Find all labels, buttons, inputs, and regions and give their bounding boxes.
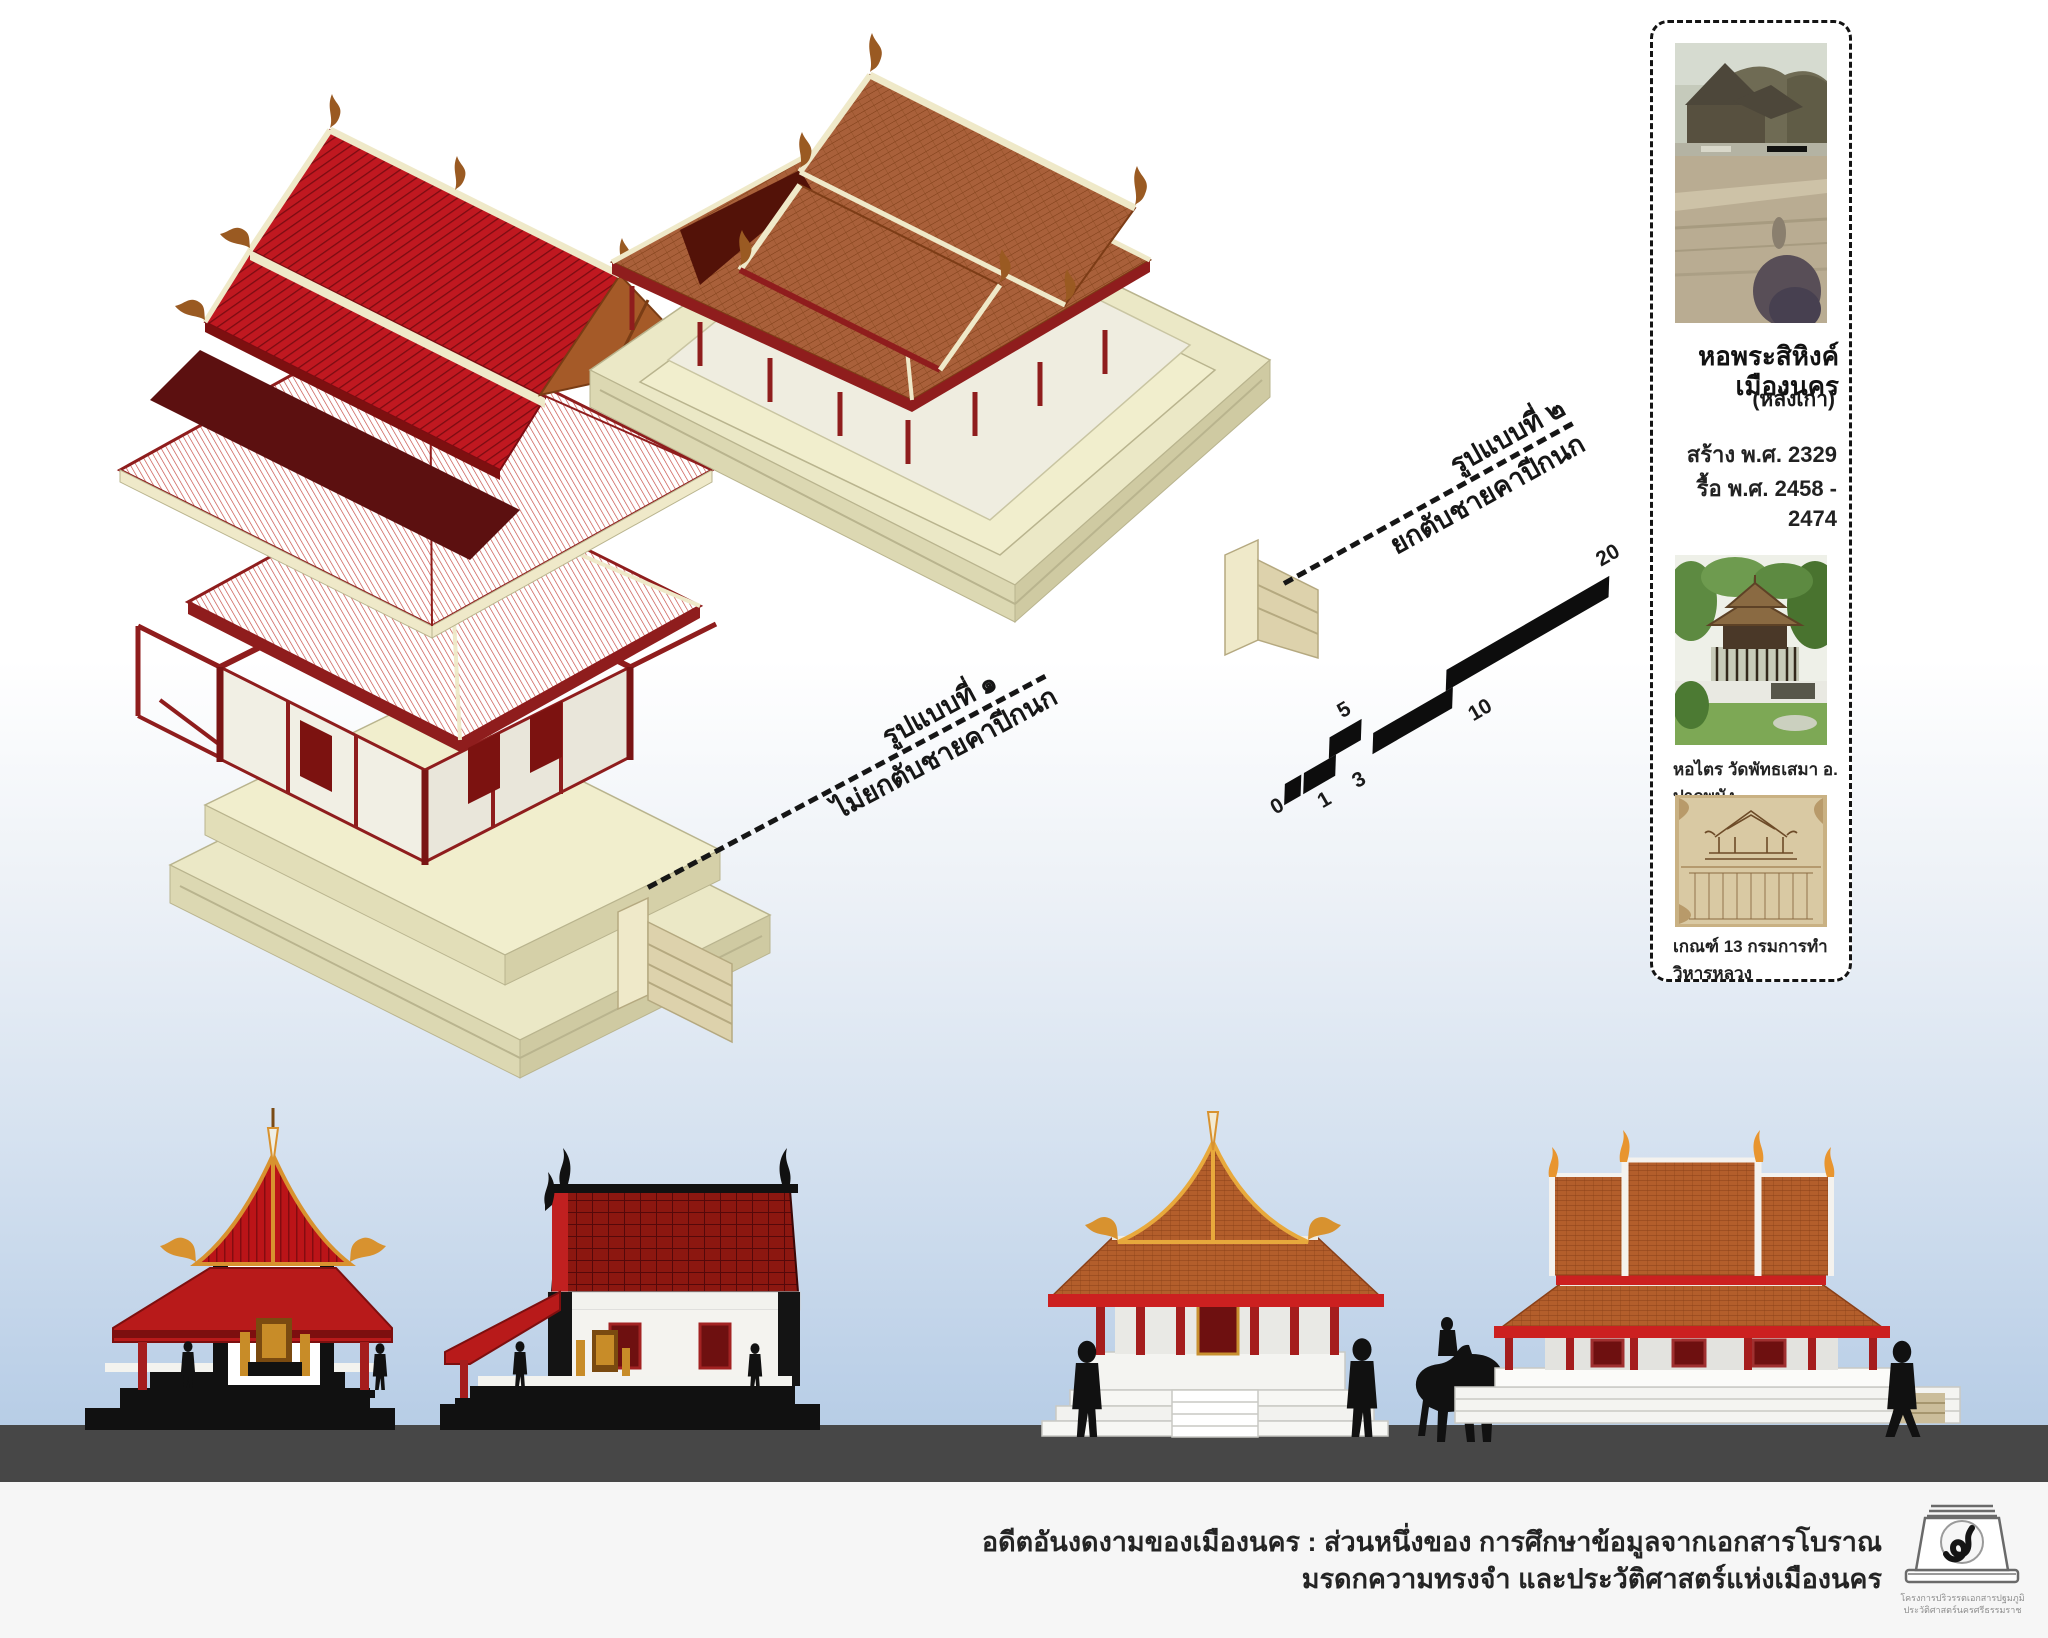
- sidebar-demolished-years: รื้อ พ.ศ. 2458 - 2474: [1661, 471, 1837, 532]
- sidebar-photo3-caption: เกณฑ์ 13 กรมการทำวิหารหลวง: [1673, 933, 1841, 987]
- logo-caption: โครงการปริวรรตเอกสารปฐมภูมิ ประวัติศาสตร…: [1880, 1592, 2045, 1616]
- sidebar-photo-manuscript: [1675, 795, 1827, 927]
- scale-segment: [1284, 774, 1301, 805]
- sidebar-photo-ho-trai: [1675, 555, 1827, 745]
- footer-caption: อดีตอันงดงามของเมืองนคร : ส่วนหนึ่งของ ก…: [982, 1524, 1882, 1598]
- footer-caption-line1: อดีตอันงดงามของเมืองนคร : ส่วนหนึ่งของ ก…: [982, 1524, 1882, 1561]
- sidebar-photo-old-building: [1675, 43, 1827, 323]
- sidebar-built-year: สร้าง พ.ศ. 2329: [1661, 437, 1837, 472]
- assembled-isometric-form2: [590, 33, 1318, 658]
- project-logo: [1898, 1498, 2026, 1594]
- sidebar-panel: หอพระสิหิงค์เมืองนคร (หลังเก่า) สร้าง พ.…: [1650, 20, 1852, 982]
- elevation-form2-front: [1042, 1112, 1388, 1437]
- logo-caption-line2: ประวัติศาสตร์นครศรีธรรมราช: [1880, 1604, 2045, 1616]
- presentation-board: รูปแบบที่ ๑ ไม่ยกตับชายคาปีกนก รูปแบบที่…: [0, 0, 2048, 1638]
- elevation-form1-side: [440, 1148, 820, 1430]
- logo-caption-line1: โครงการปริวรรตเอกสารปฐมภูมิ: [1880, 1592, 2045, 1604]
- footer-caption-line2: มรดกความทรงจำ และประวัติศาสตร์แห่งเมืองน…: [982, 1561, 1882, 1598]
- elevation-form1-front: [85, 1108, 395, 1430]
- sidebar-subtitle: (หลังเก่า): [1661, 383, 1835, 416]
- elevation-form2-side: [1455, 1130, 1960, 1437]
